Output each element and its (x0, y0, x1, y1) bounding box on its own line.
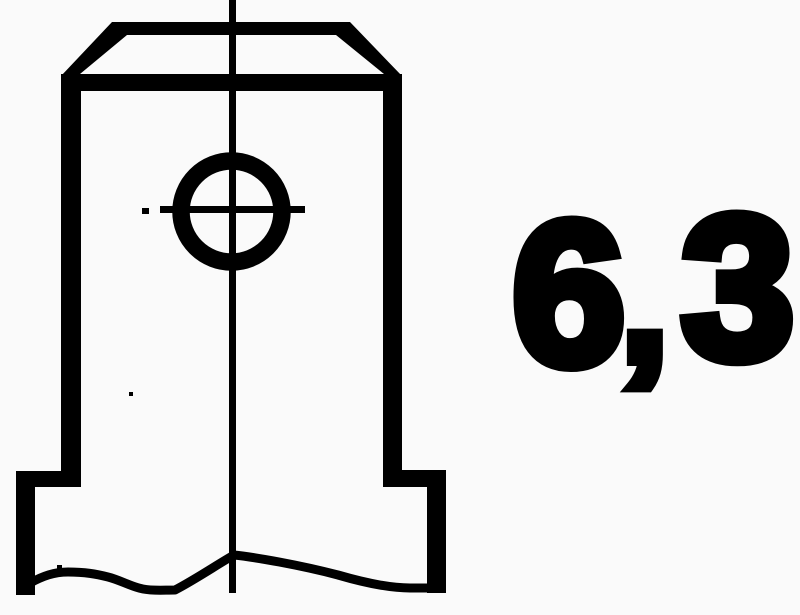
svg-text:,: , (621, 207, 668, 397)
svg-text:3: 3 (681, 174, 794, 402)
svg-text:6: 6 (512, 180, 625, 408)
